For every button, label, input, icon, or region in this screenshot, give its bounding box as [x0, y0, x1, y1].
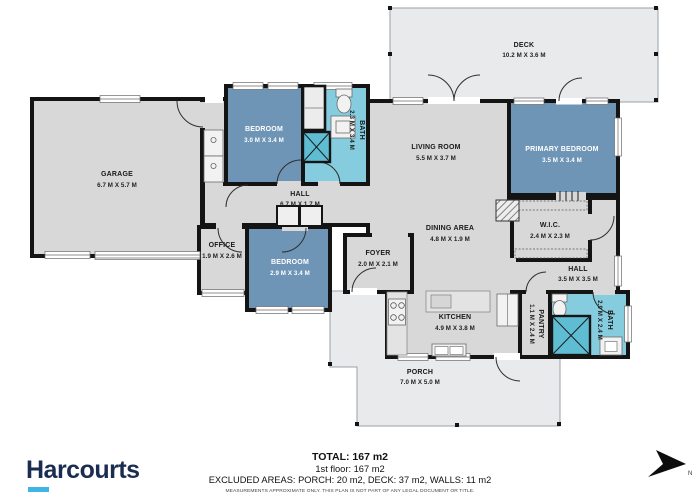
bedroom-mid-dims: 2.9 M X 3.4 M [270, 270, 310, 277]
disclaimer: MEASUREMENTS APPROXIMATE ONLY. THIS PLAN… [130, 489, 570, 494]
foyer-label: FOYER [365, 250, 390, 257]
total-area: TOTAL: 167 m2 [130, 451, 570, 463]
pantry-label: PANTRY [537, 309, 544, 338]
closet [277, 206, 299, 226]
north-letter: N [688, 471, 692, 477]
dining-label: DINING AREA [426, 225, 474, 232]
porch-dims: 7.0 M X 5.0 M [400, 379, 440, 386]
excluded-areas: EXCLUDED AREAS: PORCH: 20 m2, DECK: 37 m… [130, 475, 570, 485]
bedroom-mid-room [247, 227, 330, 310]
dining-dims: 4.8 M X 1.9 M [430, 236, 470, 243]
kitchen-label: KITCHEN [439, 314, 472, 321]
bedroom-mid-label: BEDROOM [271, 259, 309, 266]
primary-label: PRIMARY BEDROOM [525, 146, 598, 153]
logo-underline [28, 487, 49, 492]
foyer-dims: 2.0 M X 2.1 M [358, 261, 398, 268]
deck-dims: 10.2 M X 3.6 M [502, 52, 545, 59]
hall-right-dims: 3.5 M X 3.5 M [558, 276, 598, 283]
bedroom-top-dims: 3.0 M X 3.4 M [244, 137, 284, 144]
closet [300, 206, 322, 226]
washer [204, 130, 223, 156]
garage-dims: 6.7 M X 5.7 M [97, 182, 137, 189]
garage-label: GARAGE [101, 171, 133, 178]
wic-room [512, 198, 590, 260]
bedroom-top-room [226, 86, 303, 184]
pantry-dims: 1.1 M X 2.4 M [528, 304, 535, 344]
porch-label: PORCH [407, 369, 433, 376]
deck-label: DECK [514, 42, 535, 49]
wic-dims: 2.4 M X 2.3 M [530, 233, 570, 240]
laundry-fixtures [204, 130, 223, 182]
living-dims: 5.5 M X 3.7 M [416, 155, 456, 162]
hall-top-label: HALL [290, 191, 310, 198]
office-label: OFFICE [209, 242, 236, 249]
chimney-duct [496, 200, 519, 221]
area-summary: TOTAL: 167 m2 1st floor: 167 m2 EXCLUDED… [130, 451, 570, 494]
office-dims: 1.9 M X 2.6 M [202, 253, 242, 260]
harcourts-logo: Harcourts [26, 458, 140, 483]
primary-dims: 3.5 M X 3.4 M [542, 157, 582, 164]
north-arrow-shape [648, 450, 686, 477]
hall-closets [277, 206, 322, 226]
bedroom-top-label: BEDROOM [245, 126, 283, 133]
deck-area: DECK 10.2 M X 3.6 M [388, 6, 658, 102]
hall-top-dims: 6.7 M X 1.7 M [280, 201, 320, 208]
floorplan-page: DECK 10.2 M X 3.6 M PORCH 7.0 M X 5.0 M [0, 0, 700, 500]
floor-area: 1st floor: 167 m2 [130, 464, 570, 474]
kitchen-dims: 4.9 M X 3.8 M [435, 325, 475, 332]
north-arrow: N [638, 443, 696, 485]
bath-top-label: BATH [358, 120, 365, 140]
bath-right-label: BATH [606, 310, 613, 330]
dryer [204, 156, 223, 182]
hall-right-label: HALL [568, 266, 588, 273]
office-room [199, 227, 247, 293]
bath-right-dims: 2.9 M X 2.4 M [596, 300, 603, 340]
floorplan-drawing: DECK 10.2 M X 3.6 M PORCH 7.0 M X 5.0 M [0, 0, 700, 440]
wic-label: W.I.C. [540, 222, 560, 229]
living-label: LIVING ROOM [411, 144, 460, 151]
bath-top-dims: 2.3 M X 3.4 M [348, 110, 355, 150]
